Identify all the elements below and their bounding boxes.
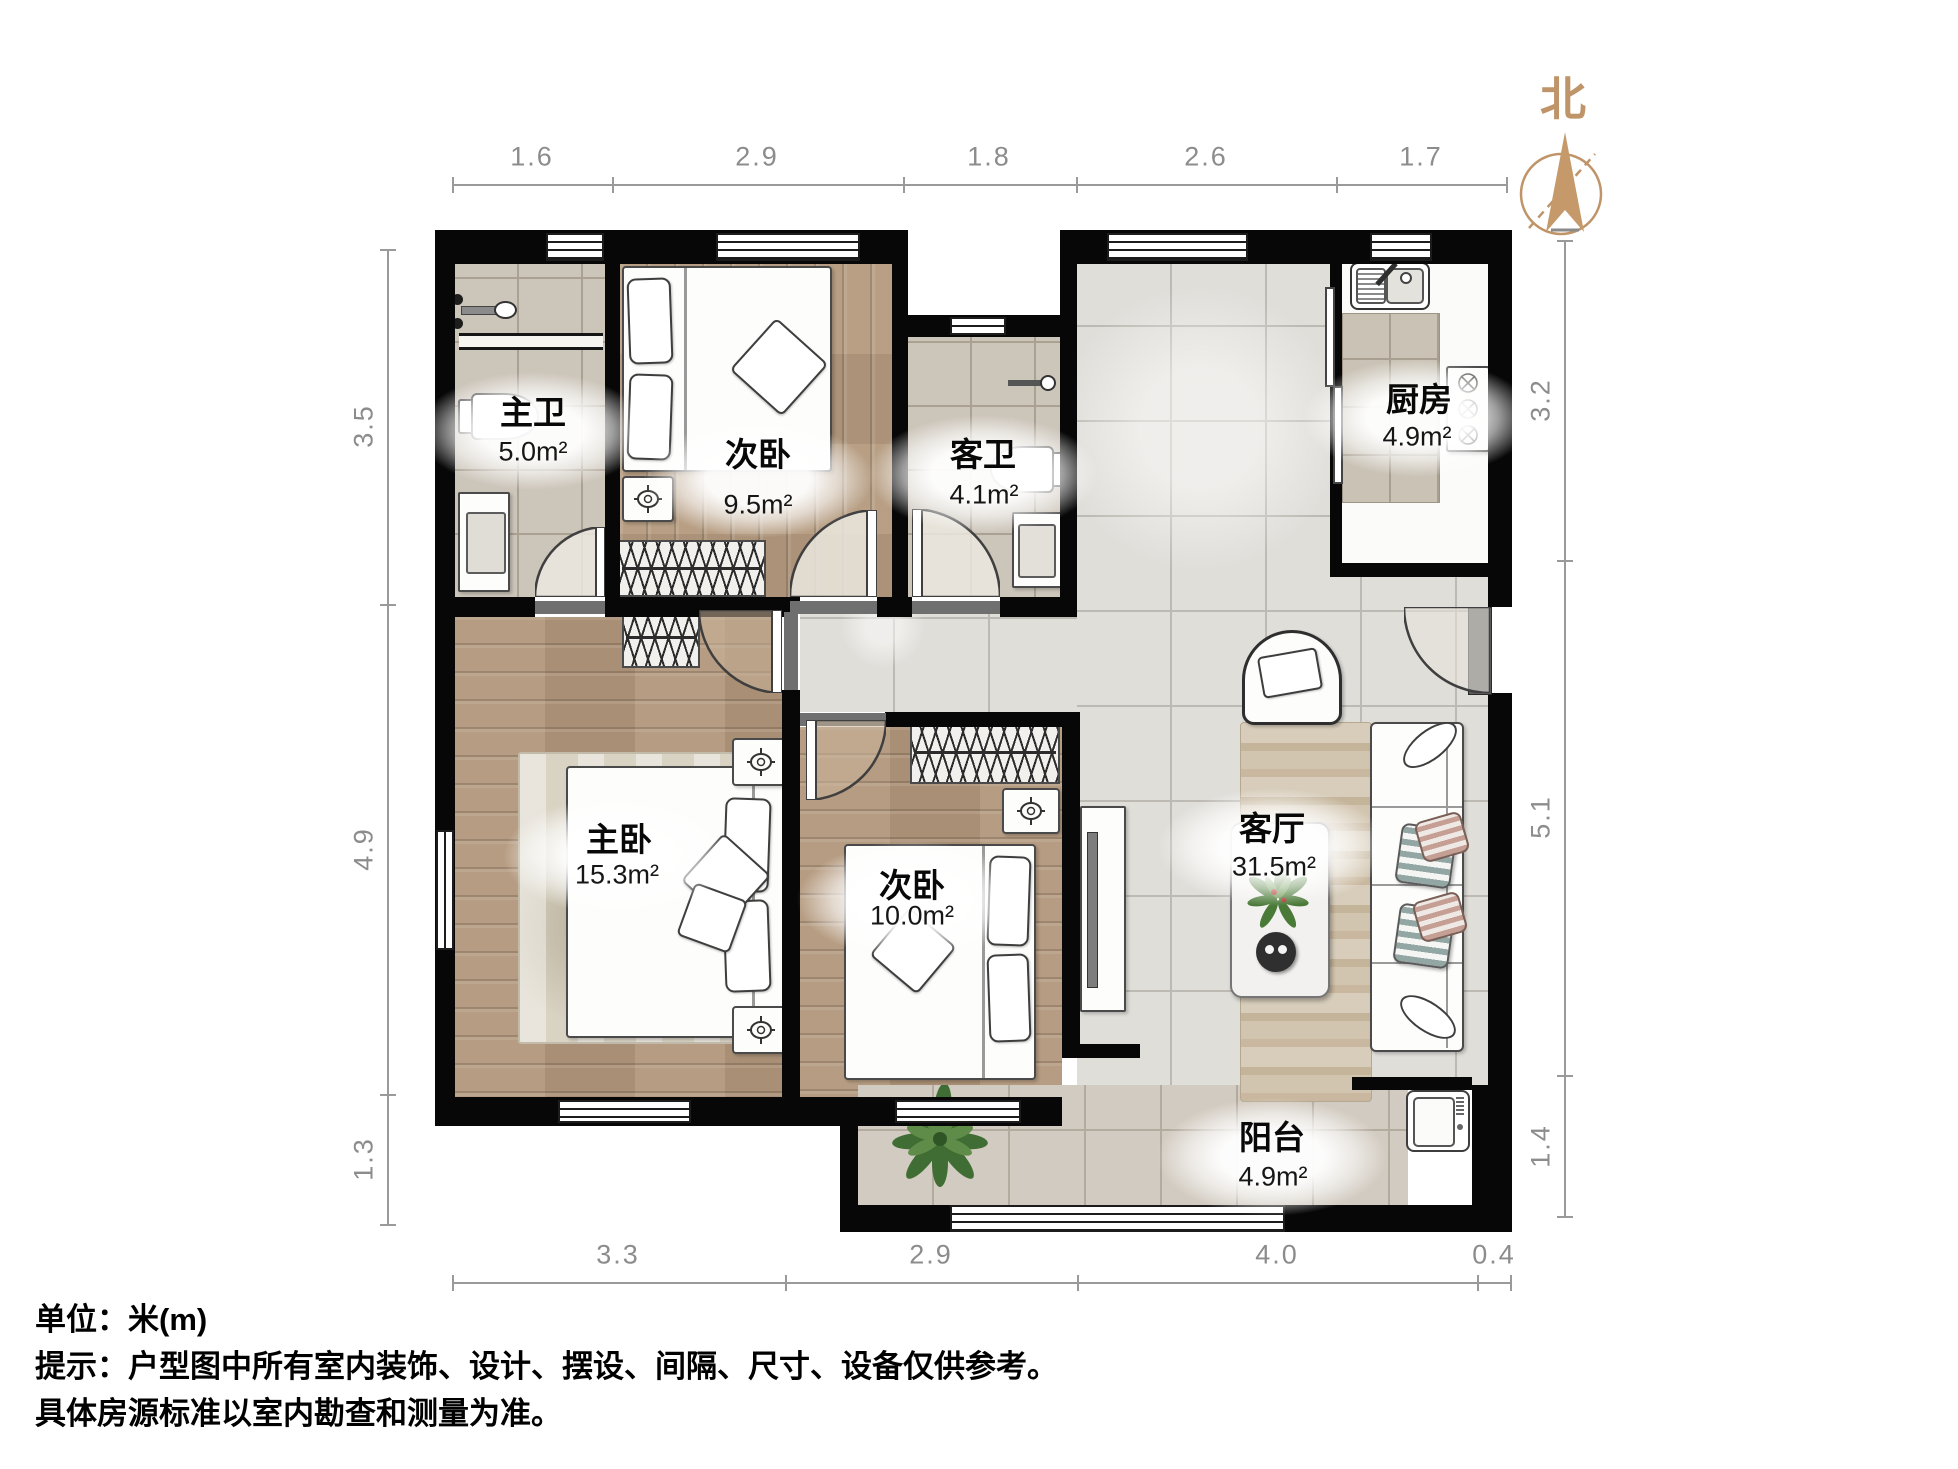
dim-label-top-4: 1.7 [1399,142,1443,173]
dim-label-top-0: 1.6 [510,142,554,173]
room-area-balcony: 4.9m² [1238,1162,1307,1193]
shower-head-icon [494,301,517,319]
floorplan-page: 主卫 5.0m² 次卧 9.5m² 客卫 4.1m² 厨房 4.9m² 主卧 1… [0,0,1958,1469]
ceiling-lamp-icon [746,1015,776,1045]
corridor-floor [800,605,1077,712]
wall-balcony-stub-right [1352,1077,1472,1090]
wall-kitchen-bottom [1330,563,1488,577]
door-arc-icon [806,720,886,800]
room-label-balcony: 阳台 [1239,1111,1305,1159]
faucet-icon [1400,272,1412,284]
window-icon [1107,233,1248,261]
shower-head-icon [1040,375,1056,391]
wall-mid-band [1000,597,1077,617]
ceiling-lamp-icon [746,747,776,777]
wall-corridor-bottom [885,712,1080,727]
dim-tick [903,177,905,193]
dim-tick [785,1275,787,1291]
sink-basin-icon [466,512,506,574]
window-icon [895,1100,1021,1123]
door-arc-icon [535,527,605,597]
dim-label-right-1: 5.1 [1526,795,1557,839]
dim-label-right-0: 3.2 [1526,378,1557,422]
room-area-guest-bath: 4.1m² [949,480,1018,511]
dim-tick [380,604,396,606]
window-icon [950,317,1006,335]
wall-mid-band [877,597,912,617]
door-threshold [784,612,798,690]
dim-tick [1077,1275,1079,1291]
wall-balcony-stub-left [1062,1044,1140,1058]
dim-label-top-1: 2.9 [735,142,779,173]
bath-shelf [459,333,603,350]
dim-tick [1506,177,1508,193]
dim-label-bottom-3: 0.4 [1472,1240,1516,1271]
room-label-master-bedroom: 主卧 [586,813,652,861]
kitchen-sink-drain [1356,268,1386,304]
dim-label-left-1: 4.9 [349,827,380,871]
dim-label-right-2: 1.4 [1526,1124,1557,1168]
room-label-bedroom-top: 次卧 [725,428,791,476]
room-area-bedroom-bottom: 10.0m² [870,901,954,932]
nightstand [1002,788,1060,834]
door-threshold [535,601,605,614]
dim-tick [1510,1275,1512,1291]
room-label-living-room: 客厅 [1239,802,1305,850]
dim-tick [380,1094,396,1096]
note-disclaimer-1: 提示：户型图中所有室内装饰、设计、摆设、间隔、尺寸、设备仅供参考。 [35,1343,1058,1390]
tray-cup-icon [1278,945,1287,954]
window-icon [558,1100,691,1123]
room-area-bedroom-top: 9.5m² [723,490,792,521]
wall-mid-band [435,597,535,617]
window-icon [1370,233,1432,261]
dim-tick [452,177,454,193]
door-threshold [790,601,877,614]
dim-tick [380,1224,396,1226]
tray-icon [1256,932,1296,972]
dim-label-top-2: 1.8 [967,142,1011,173]
room-label-guest-bath: 客卫 [950,428,1016,476]
note-disclaimer-2: 具体房源标准以室内勘查和测量为准。 [35,1390,1058,1437]
door-arc-icon [699,610,782,693]
pillow-icon [986,953,1031,1042]
dim-tick [612,177,614,193]
shower-arm-icon [1008,380,1044,386]
wall-bedroom-bottom-right [1062,712,1080,1058]
wardrobe-hanger-icon [618,540,766,597]
dim-label-left-0: 3.5 [349,404,380,448]
washer-controls-icon [1456,1097,1464,1117]
wall-left [435,230,455,1126]
washer-door-icon [1413,1097,1455,1147]
note-unit: 单位：米(m) [35,1296,1058,1343]
room-label-master-bath: 主卫 [500,386,566,434]
dim-tick [380,249,396,251]
washing-machine-icon [1406,1090,1470,1152]
wardrobe-hanger-icon [622,608,700,668]
window-icon [546,233,604,261]
door-threshold [912,601,1000,614]
tray-cup-icon [1265,945,1274,954]
dim-tick [1557,560,1573,562]
dim-line-bottom [452,1282,1512,1284]
north-compass-icon [1517,130,1611,242]
dim-label-bottom-1: 2.9 [909,1240,953,1271]
north-label: 北 [1540,63,1586,129]
room-area-master-bedroom: 15.3m² [575,860,659,891]
dim-label-bottom-2: 4.0 [1255,1240,1299,1271]
dim-label-top-3: 2.6 [1184,142,1228,173]
notes-block: 单位：米(m) 提示：户型图中所有室内装饰、设计、摆设、间隔、尺寸、设备仅供参考… [35,1296,1058,1437]
window-icon [716,233,860,261]
ceiling-lamp-icon [1016,796,1046,826]
dim-tick [452,1275,454,1291]
room-label-kitchen: 厨房 [1386,373,1452,421]
dim-line-right [1564,240,1566,1218]
room-area-master-bath: 5.0m² [498,437,567,468]
tv-icon [1087,832,1098,988]
wall-right-thick [1472,1085,1512,1232]
wardrobe-hanger-icon [910,722,1060,784]
washer-knob-icon [1457,1124,1463,1130]
dim-tick [1557,1075,1573,1077]
dim-label-left-2: 1.3 [349,1137,380,1181]
dim-label-bottom-0: 3.3 [596,1240,640,1271]
dim-tick [1076,177,1078,193]
dim-line-left [387,249,389,1224]
window-icon [436,830,454,950]
door-arc-icon entry-door-arc-icon [1404,607,1490,693]
pillow-icon [627,277,674,364]
dim-tick [1557,1216,1573,1218]
room-area-living-room: 31.5m² [1232,852,1316,883]
room-area-kitchen: 4.9m² [1382,422,1451,453]
dim-tick [1336,177,1338,193]
wall-right-lower [1488,693,1512,1085]
dim-line-top [452,184,1506,186]
dim-tick [1477,1275,1479,1291]
wall-balcony-bottom-left [840,1205,950,1232]
